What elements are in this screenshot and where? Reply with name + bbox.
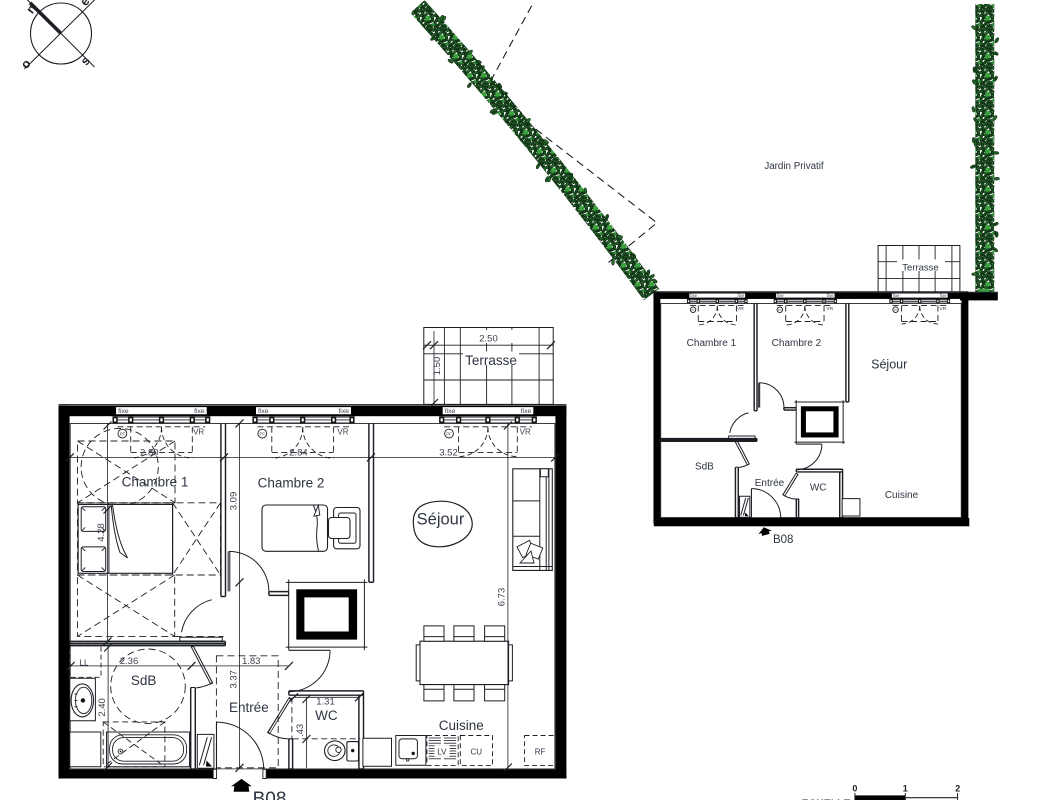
svg-text:WC: WC xyxy=(810,483,827,494)
svg-text:Séjour: Séjour xyxy=(871,358,907,372)
svg-text:SdB: SdB xyxy=(131,673,157,688)
svg-text:1.50: 1.50 xyxy=(432,357,443,376)
svg-text:PF: PF xyxy=(120,431,126,436)
svg-text:3.37: 3.37 xyxy=(228,670,239,689)
svg-text:2: 2 xyxy=(955,784,960,794)
svg-text:fixe: fixe xyxy=(118,408,129,415)
svg-text:Cuisine: Cuisine xyxy=(885,490,919,501)
svg-text:PF: PF xyxy=(446,431,452,436)
svg-text:fixe: fixe xyxy=(338,408,349,415)
svg-text:1.83: 1.83 xyxy=(242,656,261,667)
svg-text:RF: RF xyxy=(535,747,546,756)
svg-text:2.84: 2.84 xyxy=(289,447,308,458)
svg-text:fixe: fixe xyxy=(521,408,532,415)
svg-text:fixe: fixe xyxy=(445,408,456,415)
svg-text:VR: VR xyxy=(520,427,531,436)
svg-text:LV: LV xyxy=(437,747,447,756)
svg-text:fixe: fixe xyxy=(258,408,269,415)
svg-text:1: 1 xyxy=(903,784,908,794)
svg-text:2.36: 2.36 xyxy=(120,656,139,667)
svg-text:Terrasse: Terrasse xyxy=(902,262,938,273)
svg-text:1.31: 1.31 xyxy=(316,697,335,708)
svg-text:Chambre 1: Chambre 1 xyxy=(122,475,189,490)
svg-text:SdB: SdB xyxy=(695,462,714,473)
svg-text:Jardin Privatif: Jardin Privatif xyxy=(764,161,824,172)
svg-text:6.73: 6.73 xyxy=(497,588,508,607)
svg-text:CU: CU xyxy=(471,747,483,756)
svg-text:Chambre 1: Chambre 1 xyxy=(687,338,737,349)
svg-text:2.50: 2.50 xyxy=(479,333,498,344)
svg-text:B08: B08 xyxy=(773,534,793,546)
svg-text:Entrée: Entrée xyxy=(755,478,785,489)
svg-text:3.09: 3.09 xyxy=(228,492,239,511)
svg-text:WC: WC xyxy=(315,708,338,723)
svg-text:Cuisine: Cuisine xyxy=(439,718,484,733)
svg-text:Chambre 2: Chambre 2 xyxy=(772,338,822,349)
svg-text:Terrasse: Terrasse xyxy=(465,353,517,368)
svg-text:2.40: 2.40 xyxy=(97,698,108,717)
svg-text:Chambre 2: Chambre 2 xyxy=(258,476,325,491)
svg-text:B08: B08 xyxy=(253,789,287,800)
svg-text:3.52: 3.52 xyxy=(439,447,458,458)
svg-text:Entrée: Entrée xyxy=(229,700,269,715)
svg-text:VR: VR xyxy=(337,427,348,436)
svg-text:Séjour: Séjour xyxy=(417,511,465,529)
svg-text:2.80: 2.80 xyxy=(140,447,159,458)
svg-text:VR: VR xyxy=(193,427,204,436)
svg-text:4.28: 4.28 xyxy=(96,523,107,542)
svg-text:PF: PF xyxy=(259,431,265,436)
svg-text:0: 0 xyxy=(852,784,857,794)
svg-text:.43: .43 xyxy=(295,724,306,737)
svg-text:fixe: fixe xyxy=(194,408,205,415)
